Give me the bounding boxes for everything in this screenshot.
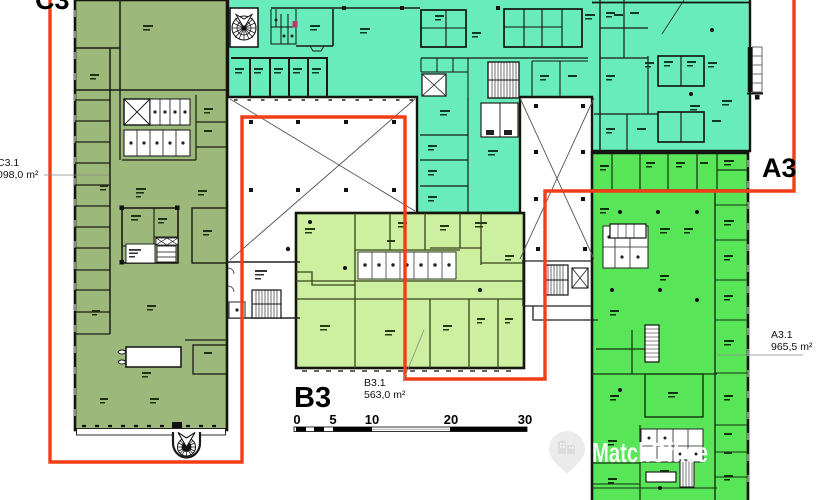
svg-text:098,0 m²: 098,0 m² xyxy=(0,169,39,181)
svg-text:5: 5 xyxy=(329,412,336,427)
svg-text:A3: A3 xyxy=(762,153,797,183)
svg-text:20: 20 xyxy=(444,412,458,427)
svg-text:C3: C3 xyxy=(35,0,70,15)
svg-text:563,0 m²: 563,0 m² xyxy=(364,389,406,401)
svg-text:30: 30 xyxy=(518,412,532,427)
svg-text:C3.1: C3.1 xyxy=(0,157,19,169)
svg-text:0: 0 xyxy=(293,412,300,427)
svg-text:10: 10 xyxy=(365,412,379,427)
svg-text:A3.1: A3.1 xyxy=(771,329,793,341)
svg-text:B3: B3 xyxy=(294,382,331,414)
svg-text:B3.1: B3.1 xyxy=(364,377,386,389)
svg-text:965,5 m²: 965,5 m² xyxy=(771,341,813,353)
svg-text:MatchOffice: MatchOffice xyxy=(592,437,708,468)
